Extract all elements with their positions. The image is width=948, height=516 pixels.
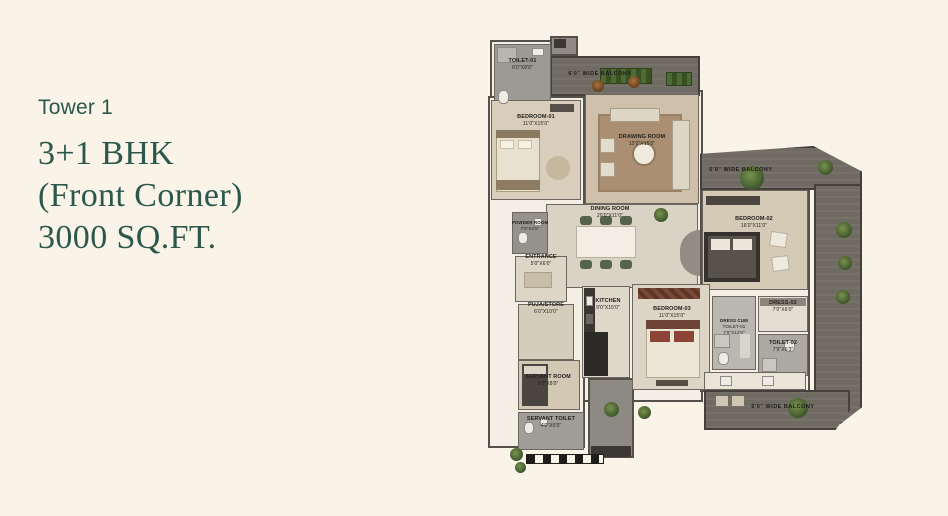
room-label-bedroom-01: BEDROOM-0111'0"X15'0" xyxy=(492,114,580,128)
pillow xyxy=(650,331,670,342)
balcony-right xyxy=(814,184,862,424)
room-label-dining: DINING ROOM20'0"X11'0" xyxy=(550,206,670,220)
tree-plant xyxy=(515,462,526,473)
unit-type: 3+1 BHK xyxy=(38,133,243,175)
room-label-entrance: ENTRANCE5'0"X6'0" xyxy=(514,254,568,268)
balcony-label-top: 6'0" WIDE BALCONY xyxy=(550,71,650,77)
kitchen-island xyxy=(584,332,608,376)
scale-bar xyxy=(526,454,604,464)
room-label-dress-toilet-01: DRESS CUMTOILET-017'0"X12'0" xyxy=(712,318,756,336)
planter-box xyxy=(666,72,692,86)
unit-position: (Front Corner) xyxy=(38,175,243,217)
sink xyxy=(720,376,732,386)
room-label-kitchen: KITCHEN9'0"X15'0" xyxy=(584,298,632,312)
tree-plant xyxy=(838,256,852,270)
dining-table xyxy=(576,226,636,258)
room-label-puja: PUJA/STORE6'0"X10'0" xyxy=(518,302,574,316)
dining-chair xyxy=(600,260,612,269)
balcony-label-right: 6'0" WIDE BALCONY xyxy=(702,167,780,173)
stove xyxy=(586,314,593,324)
balcony-label-bottom: 6'0" WIDE BALCONY xyxy=(738,404,828,410)
wardrobe xyxy=(706,196,760,205)
armchair xyxy=(769,231,788,248)
sink xyxy=(762,376,774,386)
dresser xyxy=(550,104,574,112)
vanity xyxy=(740,334,750,358)
bed-headboard xyxy=(496,130,540,138)
armchair xyxy=(600,162,615,177)
room-label-drawing: DRAWING ROOM12'0"X15'0" xyxy=(587,134,697,148)
shaft-duct xyxy=(554,39,566,48)
tree-plant xyxy=(818,160,833,175)
pillow xyxy=(733,239,752,250)
bed-headboard xyxy=(646,320,700,329)
pillow xyxy=(674,331,694,342)
pillow xyxy=(524,366,546,374)
armchair xyxy=(771,255,790,272)
unit-info-panel: Tower 1 3+1 BHK (Front Corner) 3000 SQ.F… xyxy=(38,96,243,259)
sofa xyxy=(610,108,660,122)
tree-plant xyxy=(836,222,852,238)
pot-plant xyxy=(592,80,604,92)
tree-plant xyxy=(638,406,651,419)
lounger xyxy=(716,396,728,406)
wardrobe xyxy=(638,288,700,299)
pillow xyxy=(518,140,532,149)
toilet-wc xyxy=(518,232,528,244)
room-label-powder: POWDER ROOM7'0"X4'5" xyxy=(510,220,550,232)
shower xyxy=(762,358,777,372)
room-label-toilet-01: TOILET-016'0"X8'0" xyxy=(494,58,551,72)
bed-throw xyxy=(496,180,540,190)
rug xyxy=(546,156,570,180)
pillow xyxy=(500,140,514,149)
brochure-page: { "panel": { "tower": "Tower 1", "title_… xyxy=(0,0,948,516)
room-label-bedroom-03: BEDROOM-0311'0"X15'0" xyxy=(634,306,710,320)
tower-name: Tower 1 xyxy=(38,96,243,120)
shower xyxy=(714,334,730,348)
room-label-dress-02: DRESS-027'0"X6'0" xyxy=(758,300,808,314)
pot-plant xyxy=(628,76,640,88)
doormat xyxy=(524,272,552,288)
pillow xyxy=(711,239,730,250)
toilet-wc xyxy=(718,352,729,365)
room-label-servant-toilet: SERVANT TOILET4'0"X6'0" xyxy=(516,416,586,430)
room-powder xyxy=(512,212,548,254)
tree-plant xyxy=(604,402,619,417)
room-label-bedroom-02: BEDROOM-0216'0"X11'0" xyxy=(706,216,802,230)
toilet-wc xyxy=(498,90,509,104)
tree-plant xyxy=(510,448,523,461)
unit-area: 3000 SQ.FT. xyxy=(38,217,243,259)
bench xyxy=(656,380,688,386)
sink xyxy=(532,48,544,56)
dining-chair xyxy=(620,260,632,269)
room-label-servant: SERVANT ROOM6'0"X8'0" xyxy=(516,374,580,388)
floor-plan: TOILET-016'0"X8'0" BEDROOM-0111'0"X15'0"… xyxy=(488,34,874,480)
dining-chair xyxy=(580,260,592,269)
tree-plant xyxy=(836,290,850,304)
sofa xyxy=(672,120,690,190)
room-label-toilet-02: TOILET-027'9"X6'3" xyxy=(758,340,808,354)
